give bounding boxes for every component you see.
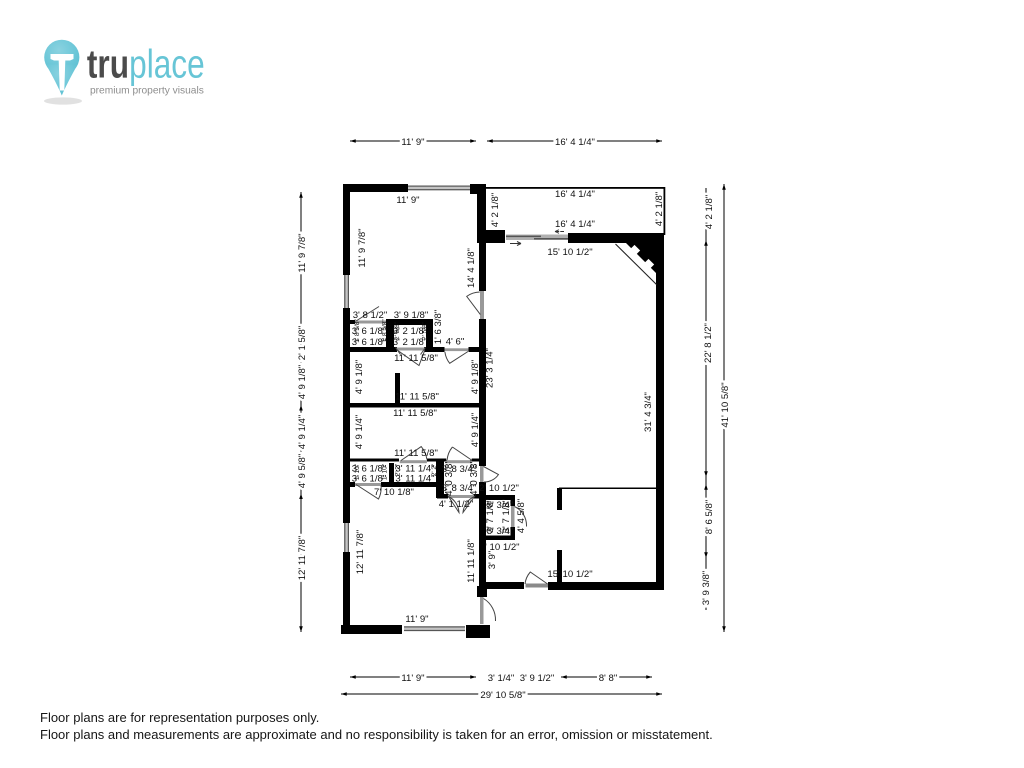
svg-text:11' 9": 11' 9" xyxy=(401,673,424,684)
svg-text:2' 10 1/2": 2' 10 1/2" xyxy=(479,483,519,494)
svg-text:1' 6 3/8": 1' 6 3/8" xyxy=(433,310,444,345)
svg-text:4' 9 1/8": 4' 9 1/8" xyxy=(297,365,308,400)
svg-text:premium property visuals: premium property visuals xyxy=(90,86,204,97)
svg-text:16' 4 1/4": 16' 4 1/4" xyxy=(555,137,595,148)
svg-text:15' 10 1/2": 15' 10 1/2" xyxy=(547,569,592,580)
svg-text:4' 4 5/8": 4' 4 5/8" xyxy=(516,499,527,534)
svg-text:11' 11 5/8": 11' 11 5/8" xyxy=(394,353,438,364)
svg-text:31' 4 3/4": 31' 4 3/4" xyxy=(643,392,654,432)
svg-text:15' 10 1/2": 15' 10 1/2" xyxy=(547,247,592,258)
svg-text:14' 4 1/8": 14' 4 1/8" xyxy=(466,248,477,288)
svg-text:3' 9 3/8": 3' 9 3/8" xyxy=(701,571,712,606)
svg-text:1' 8 5/8": 1' 8 5/8" xyxy=(354,319,361,343)
svg-text:4' 9 1/8": 4' 9 1/8" xyxy=(470,360,481,395)
svg-text:4' 9 1/4": 4' 9 1/4" xyxy=(470,413,481,448)
svg-text:23' 3 1/4": 23' 3 1/4" xyxy=(485,348,496,388)
svg-text:1' 10": 1' 10" xyxy=(354,463,361,480)
svg-text:16' 4 1/4": 16' 4 1/4" xyxy=(555,189,595,200)
svg-text:29' 10 5/8": 29' 10 5/8" xyxy=(480,690,525,701)
svg-text:11' 9": 11' 9" xyxy=(396,195,419,206)
svg-text:3' 9 1/2": 3' 9 1/2" xyxy=(520,673,555,684)
svg-text:8' 8": 8' 8" xyxy=(599,673,618,684)
svg-text:2' 2": 2' 2" xyxy=(395,463,402,476)
svg-text:22' 8 1/2": 22' 8 1/2" xyxy=(703,323,714,363)
svg-text:4' 9 1/8": 4' 9 1/8" xyxy=(354,360,365,395)
svg-text:2' 5/8": 2' 5/8" xyxy=(394,321,401,340)
svg-text:place: place xyxy=(129,41,205,86)
svg-text:Floor plans and measurements a: Floor plans and measurements are approxi… xyxy=(40,727,713,742)
svg-text:11' 11 1/8": 11' 11 1/8" xyxy=(466,539,477,583)
svg-text:4' 9 1/4": 4' 9 1/4" xyxy=(297,415,308,450)
svg-text:7' 10 1/8": 7' 10 1/8" xyxy=(374,487,414,498)
svg-text:11' 11 5/8": 11' 11 5/8" xyxy=(395,392,439,403)
svg-text:3' 9 1/8": 3' 9 1/8" xyxy=(394,310,429,321)
svg-text:3' 9": 3' 9" xyxy=(487,551,498,570)
svg-text:12' 11 7/8": 12' 11 7/8" xyxy=(355,530,366,575)
svg-text:11' 9": 11' 9" xyxy=(405,614,428,625)
svg-text:4' 6": 4' 6" xyxy=(446,337,465,348)
svg-text:3' 7 1/8": 3' 7 1/8" xyxy=(485,499,496,534)
svg-text:4' 1 1/2": 4' 1 1/2" xyxy=(439,499,474,510)
svg-text:2' 2": 2' 2" xyxy=(431,463,438,476)
svg-text:4' 2 1/8": 4' 2 1/8" xyxy=(704,195,715,230)
svg-text:tru: tru xyxy=(87,41,129,86)
svg-text:4' 9 5/8": 4' 9 5/8" xyxy=(297,454,308,489)
svg-text:11' 9": 11' 9" xyxy=(401,137,424,148)
svg-text:11' 9 7/8": 11' 9 7/8" xyxy=(297,233,308,272)
svg-text:4' 0 3/8": 4' 0 3/8" xyxy=(444,460,455,496)
svg-text:12' 11 7/8": 12' 11 7/8" xyxy=(297,536,308,581)
svg-text:3' 1/4": 3' 1/4" xyxy=(488,673,515,684)
svg-text:8' 6 5/8": 8' 6 5/8" xyxy=(704,500,715,535)
svg-text:11' 11 5/8": 11' 11 5/8" xyxy=(394,448,438,459)
svg-text:4' 9 1/4": 4' 9 1/4" xyxy=(354,415,365,450)
svg-text:2' 5/8": 2' 5/8" xyxy=(422,321,429,340)
svg-text:2' 1 5/8": 2' 1 5/8" xyxy=(297,326,308,361)
svg-text:1' 10": 1' 10" xyxy=(382,463,389,480)
svg-text:4' 2 1/8": 4' 2 1/8" xyxy=(654,192,665,227)
svg-text:4' 2 1/8": 4' 2 1/8" xyxy=(490,193,501,228)
svg-text:Floor plans are for representa: Floor plans are for representation purpo… xyxy=(40,710,319,725)
svg-text:1' 8 5/8": 1' 8 5/8" xyxy=(382,319,389,343)
svg-text:16' 4 1/4": 16' 4 1/4" xyxy=(555,219,595,230)
svg-text:41' 10 5/8": 41' 10 5/8" xyxy=(720,382,731,427)
svg-text:11' 11 5/8": 11' 11 5/8" xyxy=(393,408,437,419)
svg-text:11' 9 7/8": 11' 9 7/8" xyxy=(357,228,368,267)
svg-text:3' 7 1/8": 3' 7 1/8" xyxy=(501,499,512,534)
